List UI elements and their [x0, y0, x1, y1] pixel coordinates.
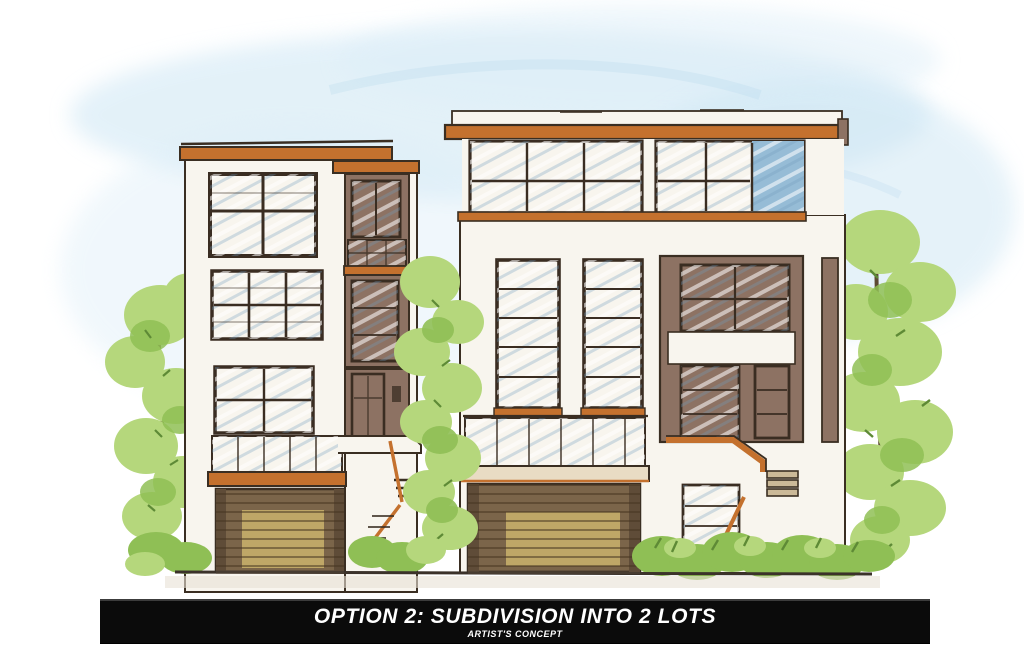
clerestory-sill-band: [458, 212, 806, 221]
right-house-roof-slab: [452, 111, 842, 126]
banner-title: OPTION 2: SUBDIVISION INTO 2 LOTS: [314, 606, 716, 628]
left-house-window-middle: [212, 271, 322, 339]
right-house-tall-window-1: [494, 260, 562, 416]
left-house-roof-fascia: [180, 147, 392, 160]
right-pilaster: [822, 258, 838, 442]
left-house-entry: [345, 369, 409, 441]
ground: [165, 570, 880, 588]
left-house-balcony: [208, 436, 346, 486]
right-house-balcony: [461, 416, 649, 481]
right-house: [445, 110, 848, 573]
caption-banner: OPTION 2: SUBDIVISION INTO 2 LOTS ARTIST…: [100, 599, 930, 644]
banner-subtitle: ARTIST'S CONCEPT: [468, 629, 563, 639]
left-house-window-lower: [215, 367, 313, 433]
left-house-tower-upper: [344, 174, 410, 275]
left-balcony-wood-cap: [208, 472, 346, 486]
elevation-sketch: [0, 0, 1024, 663]
right-house-clerestory: [458, 139, 844, 221]
left-house-garage: [216, 489, 344, 572]
left-house-tower-fascia: [333, 161, 419, 173]
left-house: [180, 141, 425, 592]
tower-balcony-cap: [344, 266, 410, 275]
right-house-roof-fascia: [445, 125, 847, 139]
artist-concept-rendering: OPTION 2: SUBDIVISION INTO 2 LOTS ARTIST…: [0, 0, 1024, 663]
right-house-tall-window-2: [581, 260, 645, 416]
right-balcony-cap: [461, 466, 649, 481]
right-house-garage: [468, 484, 640, 572]
left-house-window-top: [210, 174, 316, 256]
